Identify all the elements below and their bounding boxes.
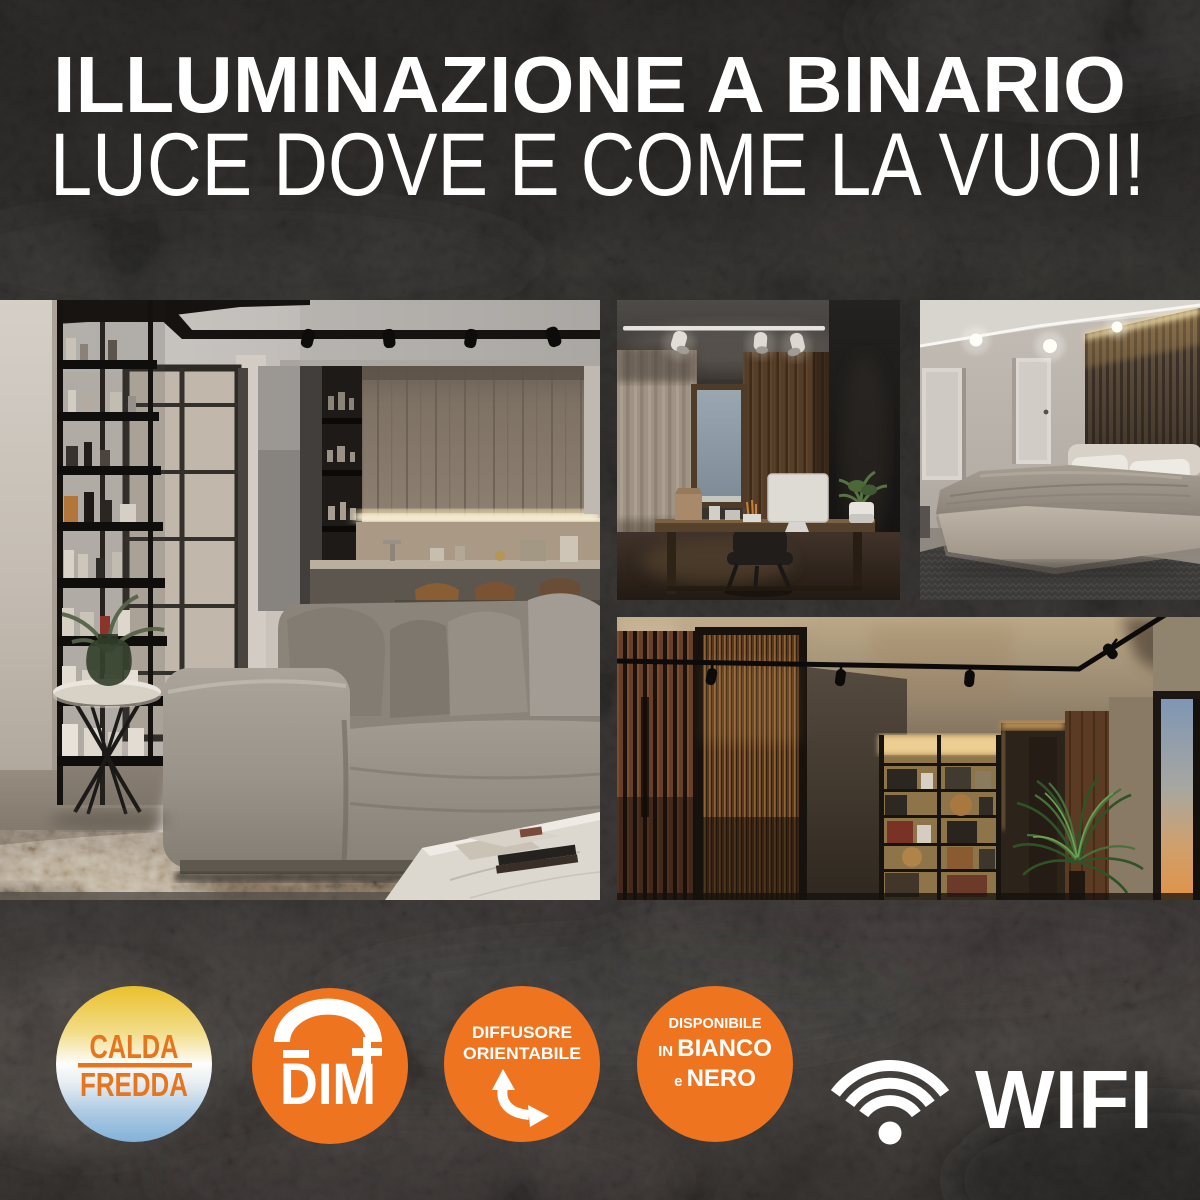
svg-text:FREDDA: FREDDA — [80, 1066, 188, 1103]
svg-text:CALDA: CALDA — [90, 1028, 179, 1065]
svg-text:WIFI: WIFI — [975, 1053, 1153, 1146]
svg-text:e NERO: e NERO — [674, 1065, 756, 1092]
svg-text:LUCE DOVE E COME LA VUOI!: LUCE DOVE E COME LA VUOI! — [50, 114, 1145, 214]
svg-text:DIFFUSORE: DIFFUSORE — [472, 1023, 572, 1042]
svg-text:DISPONIBILE: DISPONIBILE — [669, 1015, 762, 1032]
svg-text:DIM: DIM — [280, 1052, 376, 1117]
svg-text:ORIENTABILE: ORIENTABILE — [463, 1044, 581, 1063]
